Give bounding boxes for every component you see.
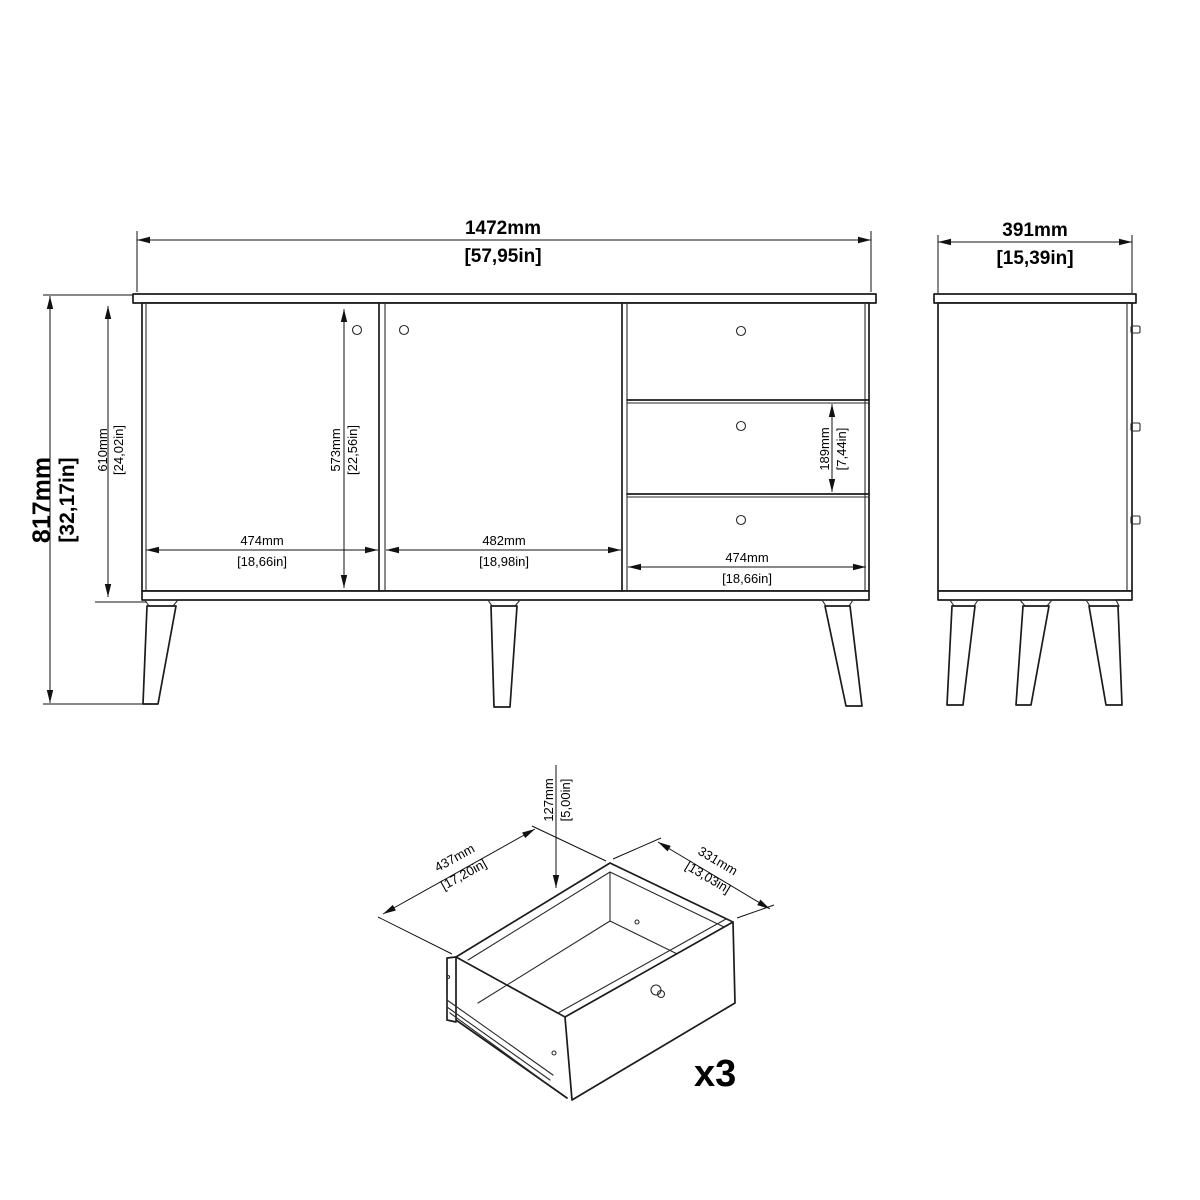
- front-carcass: [133, 294, 876, 707]
- front-view: 1472mm [57,95in] 817mm [32,17in] 610mm […: [28, 218, 876, 707]
- middle-door-width-mm-label: 482mm: [482, 533, 525, 548]
- drawer-iso-view: 127mm [5,00in] 437mm [17,20in] 331mm [13…: [378, 765, 774, 1100]
- depth-in-label: [15,39in]: [996, 248, 1073, 269]
- front-left-leg: [143, 606, 176, 704]
- side-bottom-board: [938, 591, 1132, 600]
- overall-height-in-label: [32,17in]: [56, 457, 79, 542]
- drawer-width-mm-label: 474mm: [725, 550, 768, 565]
- screw-dot: [552, 1051, 556, 1055]
- drawer-quantity-label: x3: [694, 1053, 736, 1095]
- front-bottom-board: [142, 591, 869, 600]
- technical-drawing: 1472mm [57,95in] 817mm [32,17in] 610mm […: [0, 0, 1200, 1200]
- carcass-height-mm-label: 610mm: [95, 428, 110, 471]
- overall-height-mm-label: 817mm: [28, 457, 56, 543]
- door-height-in-label: [22,56in]: [345, 425, 360, 475]
- side-middle-leg: [1016, 606, 1049, 705]
- drawer-slide-rail: [447, 995, 553, 1083]
- front-top-board: [133, 294, 876, 303]
- overall-width-in-label: [57,95in]: [464, 246, 541, 267]
- side-right-leg: [1089, 606, 1122, 705]
- drawer-width-in-label: [18,66in]: [722, 571, 772, 586]
- door-height-mm-label: 573mm: [328, 428, 343, 471]
- drawer-front-height-in-label: [7,44in]: [834, 428, 849, 471]
- dimension-drawing-page: 1472mm [57,95in] 817mm [32,17in] 610mm […: [0, 0, 1200, 1200]
- middle-door-width-in-label: [18,98in]: [479, 554, 529, 569]
- side-left-leg: [947, 606, 975, 705]
- side-body: [938, 303, 1132, 591]
- drawer-box: [447, 863, 736, 1100]
- side-dimensions: 391mm [15,39in]: [938, 220, 1132, 293]
- drawer-height-mm-label: 127mm: [541, 778, 556, 821]
- screw-dot: [635, 920, 639, 924]
- side-view: 391mm [15,39in]: [934, 220, 1140, 705]
- drawer-front-height-mm-label: 189mm: [817, 427, 832, 470]
- drawer-height-in-label: [5,00in]: [558, 779, 573, 822]
- side-top-board: [934, 294, 1136, 303]
- overall-width-mm-label: 1472mm: [465, 218, 541, 239]
- carcass-height-in-label: [24,02in]: [111, 425, 126, 475]
- depth-mm-label: 391mm: [1002, 220, 1068, 241]
- front-middle-leg: [491, 606, 517, 707]
- side-carcass: [934, 294, 1140, 705]
- screw-dot: [447, 976, 450, 979]
- left-door-width-in-label: [18,66in]: [237, 554, 287, 569]
- front-right-leg: [825, 606, 862, 706]
- left-door-width-mm-label: 474mm: [240, 533, 283, 548]
